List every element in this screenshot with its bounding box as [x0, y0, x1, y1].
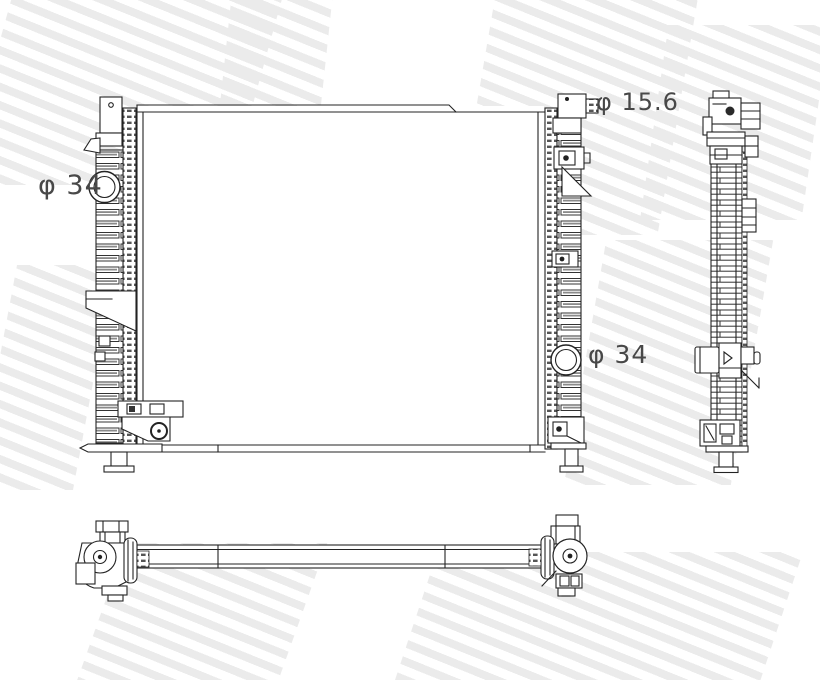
diagram-canvas: φ 34 φ 15.6 φ 34	[0, 0, 820, 680]
front-view	[80, 94, 598, 472]
dimension-label-left-port: φ 34	[38, 170, 103, 201]
plan-view	[76, 515, 587, 601]
dimension-label-right-port: φ 34	[588, 340, 648, 369]
radiator-line-drawing	[0, 0, 820, 680]
dimension-label-top-right-inlet: φ 15.6	[596, 88, 679, 116]
side-view	[695, 91, 760, 473]
